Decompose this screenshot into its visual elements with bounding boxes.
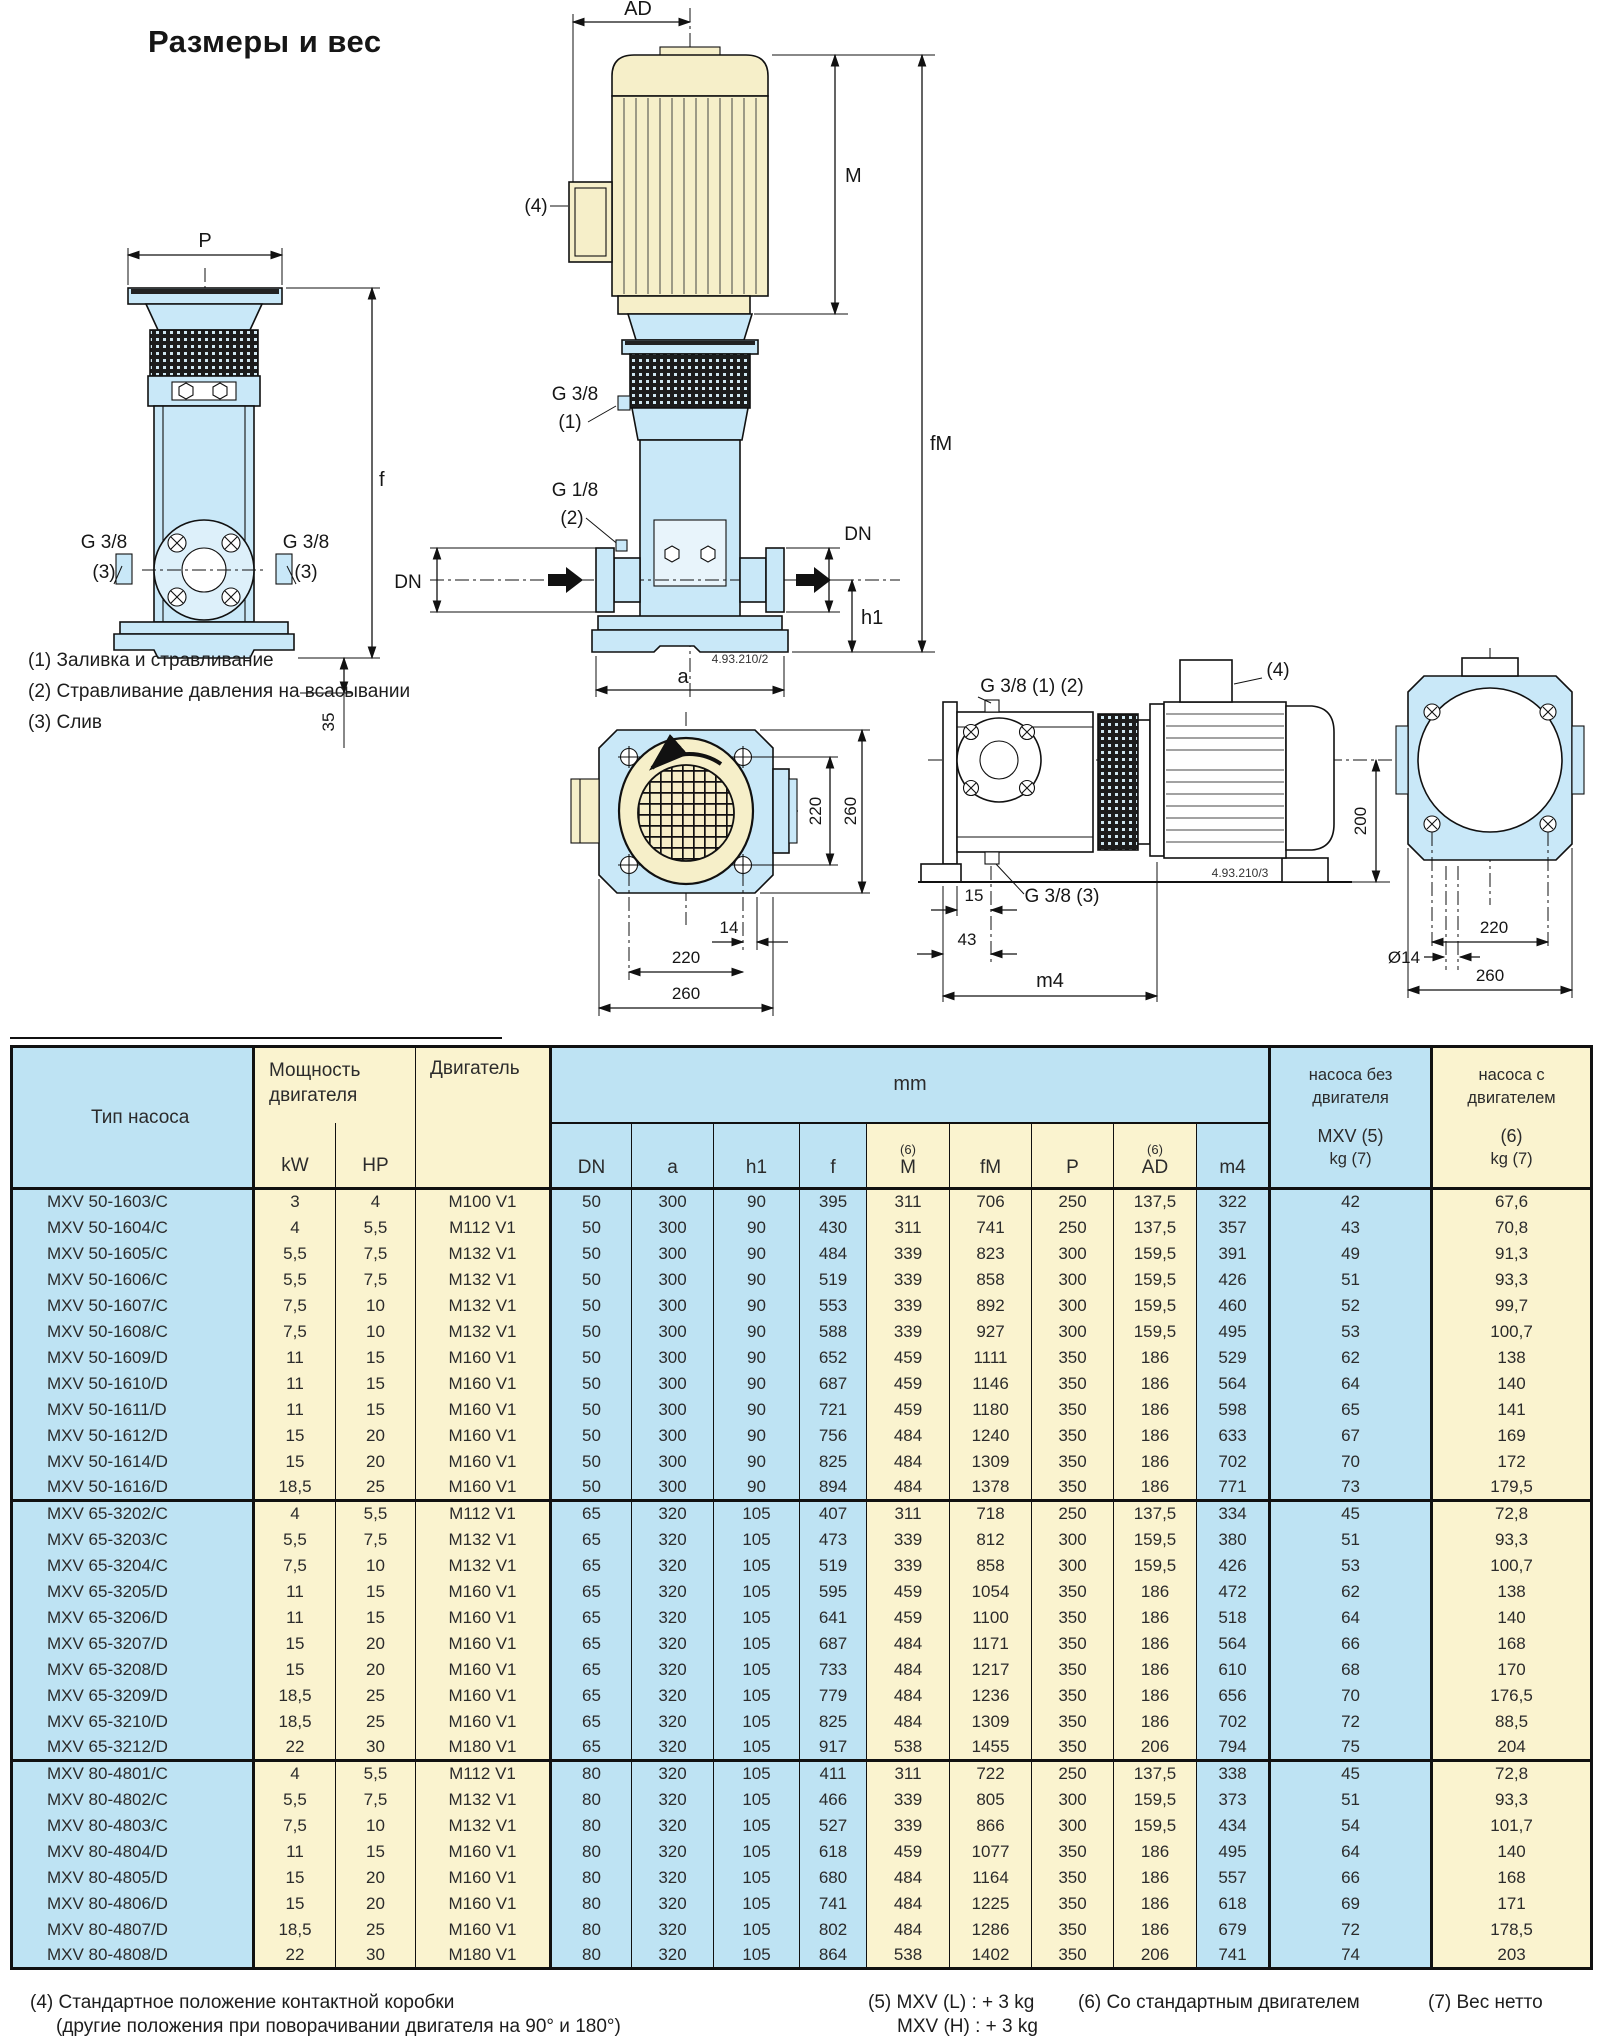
value-cell: 794 (1197, 1735, 1270, 1761)
value-cell: 70 (1270, 1449, 1432, 1475)
value-cell: 250 (1032, 1501, 1114, 1527)
value-cell: 350 (1032, 1839, 1114, 1865)
value-cell: M160 V1 (416, 1683, 551, 1709)
value-cell: 137,5 (1114, 1501, 1197, 1527)
value-cell: 62 (1270, 1345, 1432, 1371)
table-section-mxv80: MXV 80-4801/C45,5M112 V18032010541131172… (12, 1761, 1592, 1969)
value-cell: 320 (632, 1735, 714, 1761)
value-cell: 339 (867, 1527, 950, 1553)
value-cell: 7,5 (336, 1787, 416, 1813)
value-cell: 300 (1032, 1787, 1114, 1813)
value-cell: 320 (632, 1787, 714, 1813)
value-cell: 5,5 (336, 1501, 416, 1527)
value-cell: 407 (800, 1501, 867, 1527)
value-cell: M132 V1 (416, 1293, 551, 1319)
value-cell: 15 (336, 1605, 416, 1631)
dim-260-end: 260 (1476, 966, 1504, 985)
value-cell: 1146 (950, 1371, 1032, 1397)
value-cell: M160 V1 (416, 1579, 551, 1605)
value-cell: 350 (1032, 1917, 1114, 1943)
header-hp: HP (336, 1123, 416, 1189)
value-cell: 43 (1270, 1215, 1432, 1241)
value-cell: 529 (1197, 1345, 1270, 1371)
value-cell: 320 (632, 1501, 714, 1527)
value-cell: 484 (867, 1891, 950, 1917)
value-cell: 339 (867, 1553, 950, 1579)
value-cell: 679 (1197, 1917, 1270, 1943)
value-cell: 322 (1197, 1189, 1270, 1215)
value-cell: 176,5 (1432, 1683, 1592, 1709)
g18-num: (2) (560, 508, 583, 529)
value-cell: 105 (714, 1501, 800, 1527)
value-cell: 484 (867, 1631, 950, 1657)
value-cell: 927 (950, 1319, 1032, 1345)
pump-type-cell: MXV 50-1610/D (12, 1371, 254, 1397)
value-cell: 380 (1197, 1527, 1270, 1553)
value-cell: 75 (1270, 1735, 1432, 1761)
value-cell: 459 (867, 1345, 950, 1371)
value-cell: 1217 (950, 1657, 1032, 1683)
value-cell: 105 (714, 1839, 800, 1865)
value-cell: 350 (1032, 1423, 1114, 1449)
value-cell: 50 (551, 1423, 632, 1449)
value-cell: 1240 (950, 1423, 1032, 1449)
value-cell: 50 (551, 1293, 632, 1319)
value-cell: 105 (714, 1553, 800, 1579)
value-cell: 350 (1032, 1449, 1114, 1475)
value-cell: M160 V1 (416, 1371, 551, 1397)
value-cell: M160 V1 (416, 1865, 551, 1891)
dim-fM: fM (930, 433, 952, 455)
value-cell: 105 (714, 1683, 800, 1709)
value-cell: 186 (1114, 1371, 1197, 1397)
value-cell: 5,5 (336, 1215, 416, 1241)
value-cell: M132 V1 (416, 1813, 551, 1839)
value-cell: 25 (336, 1683, 416, 1709)
value-cell: 137,5 (1114, 1215, 1197, 1241)
value-cell: 300 (1032, 1813, 1114, 1839)
value-cell: 553 (800, 1293, 867, 1319)
pump-type-cell: MXV 50-1608/C (12, 1319, 254, 1345)
value-cell: M160 V1 (416, 1631, 551, 1657)
value-cell: 1236 (950, 1683, 1032, 1709)
value-cell: 105 (714, 1631, 800, 1657)
top-view-drawing: 220 260 14 220 260 (571, 712, 870, 1016)
table-row: MXV 65-3204/C7,510M132 V1653201055193398… (12, 1553, 1592, 1579)
value-cell: 186 (1114, 1423, 1197, 1449)
table-row: MXV 50-1611/D1115M160 V15030090721459118… (12, 1397, 1592, 1423)
value-cell: 484 (867, 1449, 950, 1475)
value-cell: M132 V1 (416, 1267, 551, 1293)
value-cell: 186 (1114, 1709, 1197, 1735)
value-cell: 350 (1032, 1709, 1114, 1735)
table-row: MXV 80-4808/D2230M180 V18032010586453814… (12, 1943, 1592, 1969)
dim-P: P (198, 230, 211, 252)
value-cell: 430 (800, 1215, 867, 1241)
value-cell: 65 (551, 1657, 632, 1683)
value-cell: 825 (800, 1449, 867, 1475)
value-cell: 466 (800, 1787, 867, 1813)
value-cell: 52 (1270, 1293, 1432, 1319)
value-cell: 18,5 (254, 1475, 336, 1501)
value-cell: 350 (1032, 1475, 1114, 1501)
pump-type-cell: MXV 65-3206/D (12, 1605, 254, 1631)
value-cell: 702 (1197, 1709, 1270, 1735)
dim-15: 15 (965, 886, 984, 905)
header-m: (6) M (867, 1123, 950, 1189)
value-cell: 137,5 (1114, 1189, 1197, 1215)
value-cell: 15 (254, 1657, 336, 1683)
value-cell: 25 (336, 1917, 416, 1943)
table-row: MXV 65-3205/D1115M160 V16532010559545910… (12, 1579, 1592, 1605)
value-cell: 65 (551, 1631, 632, 1657)
value-cell: 171 (1432, 1891, 1592, 1917)
pump-type-cell: MXV 50-1611/D (12, 1397, 254, 1423)
value-cell: 300 (1032, 1241, 1114, 1267)
value-cell: 90 (714, 1475, 800, 1501)
pump-type-cell: MXV 80-4807/D (12, 1917, 254, 1943)
value-cell: 11 (254, 1345, 336, 1371)
value-cell: 30 (336, 1943, 416, 1969)
value-cell: 7,5 (336, 1267, 416, 1293)
value-cell: 90 (714, 1371, 800, 1397)
value-cell: 90 (714, 1449, 800, 1475)
pump-type-cell: MXV 80-4801/C (12, 1761, 254, 1787)
dim-14: 14 (720, 918, 739, 937)
dim-h1: h1 (861, 607, 883, 629)
value-cell: M160 V1 (416, 1423, 551, 1449)
table-row: MXV 50-1614/D1520M160 V15030090825484130… (12, 1449, 1592, 1475)
value-cell: 741 (950, 1215, 1032, 1241)
value-cell: M160 V1 (416, 1449, 551, 1475)
value-cell: 18,5 (254, 1683, 336, 1709)
value-cell: 101,7 (1432, 1813, 1592, 1839)
value-cell: 70 (1270, 1683, 1432, 1709)
value-cell: 186 (1114, 1475, 1197, 1501)
pump-type-cell: MXV 50-1616/D (12, 1475, 254, 1501)
value-cell: 656 (1197, 1683, 1270, 1709)
value-cell: 80 (551, 1787, 632, 1813)
value-cell: 50 (551, 1215, 632, 1241)
value-cell: 100,7 (1432, 1553, 1592, 1579)
value-cell: 80 (551, 1943, 632, 1969)
value-cell: M112 V1 (416, 1501, 551, 1527)
header-m-sup: (6) (867, 1142, 949, 1157)
value-cell: 320 (632, 1631, 714, 1657)
value-cell: 65 (551, 1683, 632, 1709)
value-cell: 484 (867, 1657, 950, 1683)
value-cell: 7,5 (254, 1319, 336, 1345)
g18-label: G 1/8 (552, 480, 598, 501)
table-row: MXV 80-4802/C5,57,5M132 V180320105466339… (12, 1787, 1592, 1813)
value-cell: 186 (1114, 1657, 1197, 1683)
value-cell: 186 (1114, 1839, 1197, 1865)
value-cell: 756 (800, 1423, 867, 1449)
value-cell: 300 (1032, 1293, 1114, 1319)
value-cell: 72,8 (1432, 1501, 1592, 1527)
value-cell: 350 (1032, 1943, 1114, 1969)
value-cell: 11 (254, 1605, 336, 1631)
value-cell: 20 (336, 1449, 416, 1475)
value-cell: 320 (632, 1943, 714, 1969)
value-cell: 90 (714, 1267, 800, 1293)
value-cell: 93,3 (1432, 1527, 1592, 1553)
value-cell: 5,5 (254, 1527, 336, 1553)
value-cell: 426 (1197, 1553, 1270, 1579)
footnote-4a: (4) Стандартное положение контактной кор… (30, 1992, 454, 2014)
value-cell: 186 (1114, 1345, 1197, 1371)
value-cell: 20 (336, 1423, 416, 1449)
value-cell: 141 (1432, 1397, 1592, 1423)
table-row: MXV 80-4801/C45,5M112 V18032010541131172… (12, 1761, 1592, 1787)
table-row: MXV 50-1612/D1520M160 V15030090756484124… (12, 1423, 1592, 1449)
dim-dia14: Ø14 (1388, 948, 1420, 967)
value-cell: 74 (1270, 1943, 1432, 1969)
inlet-arrow-icon (548, 567, 583, 593)
value-cell: 20 (336, 1865, 416, 1891)
value-cell: 105 (714, 1709, 800, 1735)
table-row: MXV 50-1605/C5,57,5M132 V150300904843398… (12, 1241, 1592, 1267)
value-cell: 65 (551, 1735, 632, 1761)
header-power: Мощность двигателя (254, 1047, 416, 1123)
value-cell: 519 (800, 1267, 867, 1293)
value-cell: 311 (867, 1761, 950, 1787)
value-cell: 391 (1197, 1241, 1270, 1267)
header-f: f (800, 1123, 867, 1189)
value-cell: 484 (867, 1917, 950, 1943)
value-cell: 721 (800, 1397, 867, 1423)
table-row: MXV 65-3207/D1520M160 V16532010568748411… (12, 1631, 1592, 1657)
pump-with-motor-drawing: AD (4) G (394, 0, 952, 700)
value-cell: 50 (551, 1319, 632, 1345)
value-cell: M160 V1 (416, 1475, 551, 1501)
value-cell: 137,5 (1114, 1761, 1197, 1787)
value-cell: 159,5 (1114, 1319, 1197, 1345)
footnote-4b: (другие положения при поворачивании двиг… (56, 2016, 621, 2038)
value-cell: 179,5 (1432, 1475, 1592, 1501)
value-cell: 15 (254, 1449, 336, 1475)
value-cell: M132 V1 (416, 1527, 551, 1553)
g38-3-right-num: (3) (294, 562, 317, 583)
value-cell: 892 (950, 1293, 1032, 1319)
value-cell: 51 (1270, 1787, 1432, 1813)
value-cell: 4 (254, 1215, 336, 1241)
value-cell: 1164 (950, 1865, 1032, 1891)
value-cell: 90 (714, 1215, 800, 1241)
value-cell: 105 (714, 1787, 800, 1813)
g38-12-label: G 3/8 (1) (2) (980, 676, 1083, 697)
header-m4: m4 (1197, 1123, 1270, 1189)
value-cell: 105 (714, 1735, 800, 1761)
value-cell: 11 (254, 1839, 336, 1865)
value-cell: 460 (1197, 1293, 1270, 1319)
value-cell: 250 (1032, 1215, 1114, 1241)
dim-220-bottom: 220 (672, 948, 700, 967)
header-m-label: M (867, 1157, 949, 1179)
value-cell: 3 (254, 1189, 336, 1215)
value-cell: M100 V1 (416, 1189, 551, 1215)
value-cell: 10 (336, 1293, 416, 1319)
value-cell: 917 (800, 1735, 867, 1761)
dim-a: a (677, 666, 689, 688)
table-section-mxv50: MXV 50-1603/C34M100 V1503009039531170625… (12, 1189, 1592, 1501)
pump-type-cell: MXV 80-4804/D (12, 1839, 254, 1865)
weight-without-line1: насоса без (1271, 1064, 1430, 1087)
table-row: MXV 65-3208/D1520M160 V16532010573348412… (12, 1657, 1592, 1683)
value-cell: 610 (1197, 1657, 1270, 1683)
table-section-mxv65: MXV 65-3202/C45,5M112 V16532010540731171… (12, 1501, 1592, 1761)
value-cell: 69 (1270, 1891, 1432, 1917)
value-cell: 204 (1432, 1735, 1592, 1761)
value-cell: M180 V1 (416, 1735, 551, 1761)
value-cell: 64 (1270, 1371, 1432, 1397)
value-cell: 51 (1270, 1527, 1432, 1553)
value-cell: 10 (336, 1813, 416, 1839)
value-cell: 105 (714, 1657, 800, 1683)
value-cell: 50 (551, 1241, 632, 1267)
value-cell: 350 (1032, 1579, 1114, 1605)
value-cell: M160 V1 (416, 1605, 551, 1631)
value-cell: 65 (551, 1605, 632, 1631)
value-cell: 484 (800, 1241, 867, 1267)
value-cell: 350 (1032, 1735, 1114, 1761)
value-cell: 172 (1432, 1449, 1592, 1475)
value-cell: 5,5 (254, 1241, 336, 1267)
pump-type-cell: MXV 65-3208/D (12, 1657, 254, 1683)
value-cell: 300 (632, 1449, 714, 1475)
header-weight-with: насоса с двигателем (6) kg (7) (1432, 1047, 1592, 1189)
value-cell: 300 (1032, 1319, 1114, 1345)
value-cell: 5,5 (336, 1761, 416, 1787)
value-cell: 186 (1114, 1865, 1197, 1891)
value-cell: 90 (714, 1319, 800, 1345)
value-cell: 42 (1270, 1189, 1432, 1215)
value-cell: 641 (800, 1605, 867, 1631)
header-power-line1: Мощность (269, 1058, 415, 1083)
value-cell: 771 (1197, 1475, 1270, 1501)
header-ad-label: AD (1114, 1157, 1196, 1179)
table-row: MXV 80-4805/D1520M160 V18032010568048411… (12, 1865, 1592, 1891)
pump-type-cell: MXV 80-4802/C (12, 1787, 254, 1813)
value-cell: 823 (950, 1241, 1032, 1267)
value-cell: 72 (1270, 1917, 1432, 1943)
table-row: MXV 50-1607/C7,510M132 V1503009055333989… (12, 1293, 1592, 1319)
value-cell: 733 (800, 1657, 867, 1683)
value-cell: M112 V1 (416, 1215, 551, 1241)
header-motor: Двигатель (416, 1047, 551, 1189)
value-cell: 68 (1270, 1657, 1432, 1683)
value-cell: 300 (1032, 1553, 1114, 1579)
pump-type-cell: MXV 65-3203/C (12, 1527, 254, 1553)
pump-type-cell: MXV 65-3202/C (12, 1501, 254, 1527)
value-cell: 311 (867, 1215, 950, 1241)
value-cell: M132 V1 (416, 1553, 551, 1579)
pump-type-cell: MXV 50-1606/C (12, 1267, 254, 1293)
value-cell: 105 (714, 1891, 800, 1917)
value-cell: 105 (714, 1943, 800, 1969)
value-cell: 206 (1114, 1943, 1197, 1969)
weight-with-sub1: (6) (1433, 1110, 1590, 1148)
value-cell: 1077 (950, 1839, 1032, 1865)
dim-DN-left: DN (394, 572, 421, 593)
table-row: MXV 80-4807/D18,525M160 V180320105802484… (12, 1917, 1592, 1943)
value-cell: 65 (551, 1527, 632, 1553)
value-cell: 300 (632, 1371, 714, 1397)
table-row: MXV 50-1608/C7,510M132 V1503009058833992… (12, 1319, 1592, 1345)
value-cell: 894 (800, 1475, 867, 1501)
value-cell: 4 (254, 1501, 336, 1527)
footnote-6: (6) Со стандартным двигателем (1078, 1992, 1360, 2014)
footnote-5a: (5) MXV (L) : + 3 kg (868, 1992, 1034, 2014)
footnote-7: (7) Вес нетто (1428, 1992, 1543, 2014)
value-cell: 20 (336, 1891, 416, 1917)
value-cell: 1402 (950, 1943, 1032, 1969)
value-cell: 62 (1270, 1579, 1432, 1605)
value-cell: 718 (950, 1501, 1032, 1527)
header-a: a (632, 1123, 714, 1189)
value-cell: 741 (1197, 1943, 1270, 1969)
value-cell: 618 (800, 1839, 867, 1865)
header-p: P (1032, 1123, 1114, 1189)
value-cell: 741 (800, 1891, 867, 1917)
value-cell: 350 (1032, 1371, 1114, 1397)
value-cell: 320 (632, 1891, 714, 1917)
table-row: MXV 65-3202/C45,5M112 V16532010540731171… (12, 1501, 1592, 1527)
value-cell: 300 (1032, 1527, 1114, 1553)
value-cell: 357 (1197, 1215, 1270, 1241)
value-cell: 633 (1197, 1423, 1270, 1449)
value-cell: 72,8 (1432, 1761, 1592, 1787)
value-cell: 50 (551, 1345, 632, 1371)
weight-without-sub2: kg (7) (1271, 1148, 1430, 1171)
value-cell: 7,5 (336, 1527, 416, 1553)
value-cell: 320 (632, 1917, 714, 1943)
value-cell: 350 (1032, 1345, 1114, 1371)
drawing-code-3: 4.93.210/3 (1212, 866, 1269, 880)
g38-3-right-label: G 3/8 (283, 532, 329, 553)
value-cell: 4 (336, 1189, 416, 1215)
value-cell: M160 V1 (416, 1345, 551, 1371)
value-cell: 473 (800, 1527, 867, 1553)
value-cell: 25 (336, 1709, 416, 1735)
value-cell: 15 (254, 1865, 336, 1891)
value-cell: 50 (551, 1267, 632, 1293)
dim-m4: m4 (1036, 970, 1064, 992)
value-cell: 54 (1270, 1813, 1432, 1839)
value-cell: 140 (1432, 1371, 1592, 1397)
value-cell: 159,5 (1114, 1241, 1197, 1267)
value-cell: 170 (1432, 1657, 1592, 1683)
value-cell: 426 (1197, 1267, 1270, 1293)
value-cell: 300 (632, 1319, 714, 1345)
value-cell: 1286 (950, 1917, 1032, 1943)
catalog-page: Размеры и вес .o{stroke:#111;stroke-widt… (0, 0, 1600, 2040)
header-pump-type: Тип насоса (12, 1047, 254, 1189)
table-row: MXV 80-4804/D1115M160 V18032010561845910… (12, 1839, 1592, 1865)
value-cell: 680 (800, 1865, 867, 1891)
value-cell: 50 (551, 1189, 632, 1215)
value-cell: M132 V1 (416, 1319, 551, 1345)
value-cell: 320 (632, 1579, 714, 1605)
dim-f: f (379, 469, 385, 491)
value-cell: 459 (867, 1371, 950, 1397)
value-cell: 90 (714, 1293, 800, 1319)
value-cell: 618 (1197, 1891, 1270, 1917)
value-cell: 459 (867, 1839, 950, 1865)
value-cell: 186 (1114, 1449, 1197, 1475)
value-cell: 687 (800, 1371, 867, 1397)
table-row: MXV 65-3206/D1115M160 V16532010564145911… (12, 1605, 1592, 1631)
